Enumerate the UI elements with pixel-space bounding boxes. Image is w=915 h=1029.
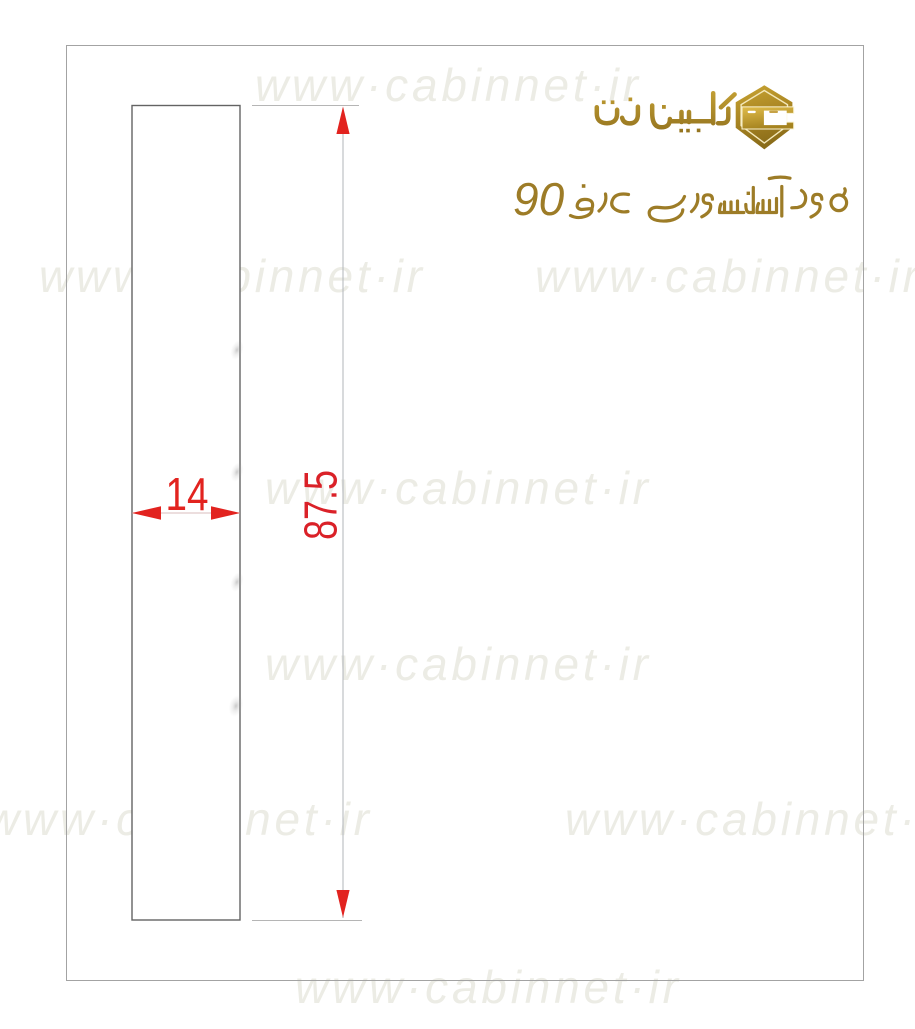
svg-text:14: 14 (166, 469, 209, 520)
svg-text:www·cabinnet·ir: www·cabinnet·ir (295, 961, 682, 1013)
svg-text:www·cabinnet·ir: www·cabinnet·ir (265, 638, 652, 690)
svg-text:90: 90 (513, 173, 565, 225)
svg-text:www·cabinnet·ir: www·cabinnet·ir (535, 250, 915, 302)
svg-text:www·cabinnet·ir: www·cabinnet·ir (565, 793, 915, 845)
svg-text:www·cabinnet·ir: www·cabinnet·ir (255, 59, 642, 111)
svg-text:87.5: 87.5 (295, 470, 346, 540)
